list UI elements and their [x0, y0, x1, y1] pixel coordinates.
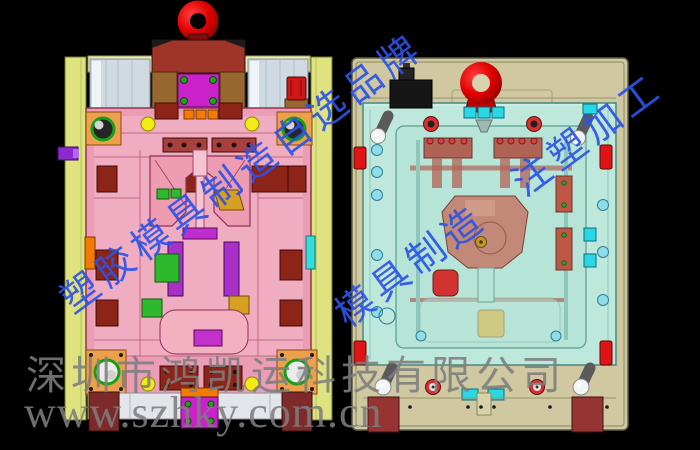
- left-foot: [282, 392, 312, 431]
- right-mold-render: [352, 58, 628, 432]
- left-red-clamp: [285, 77, 308, 112]
- left-orange-edge-block: [85, 237, 95, 269]
- left-top-clamp: [152, 40, 245, 111]
- right-foot: [368, 397, 399, 432]
- right-foot: [572, 397, 603, 432]
- left-foot: [89, 392, 119, 431]
- mold-render-canvas: [0, 0, 700, 450]
- cad-screenshot-stage: 塑胶模具制造自选品牌 模具制造 注塑加工 深圳市鸿凯运科技有限公司 www.sz…: [0, 0, 700, 450]
- left-purple-connector: [58, 147, 79, 160]
- right-red-block: [433, 270, 458, 296]
- left-cyan-edge-block: [306, 236, 315, 269]
- left-orange-gates: [184, 110, 218, 119]
- left-mold-render: [58, 1, 332, 432]
